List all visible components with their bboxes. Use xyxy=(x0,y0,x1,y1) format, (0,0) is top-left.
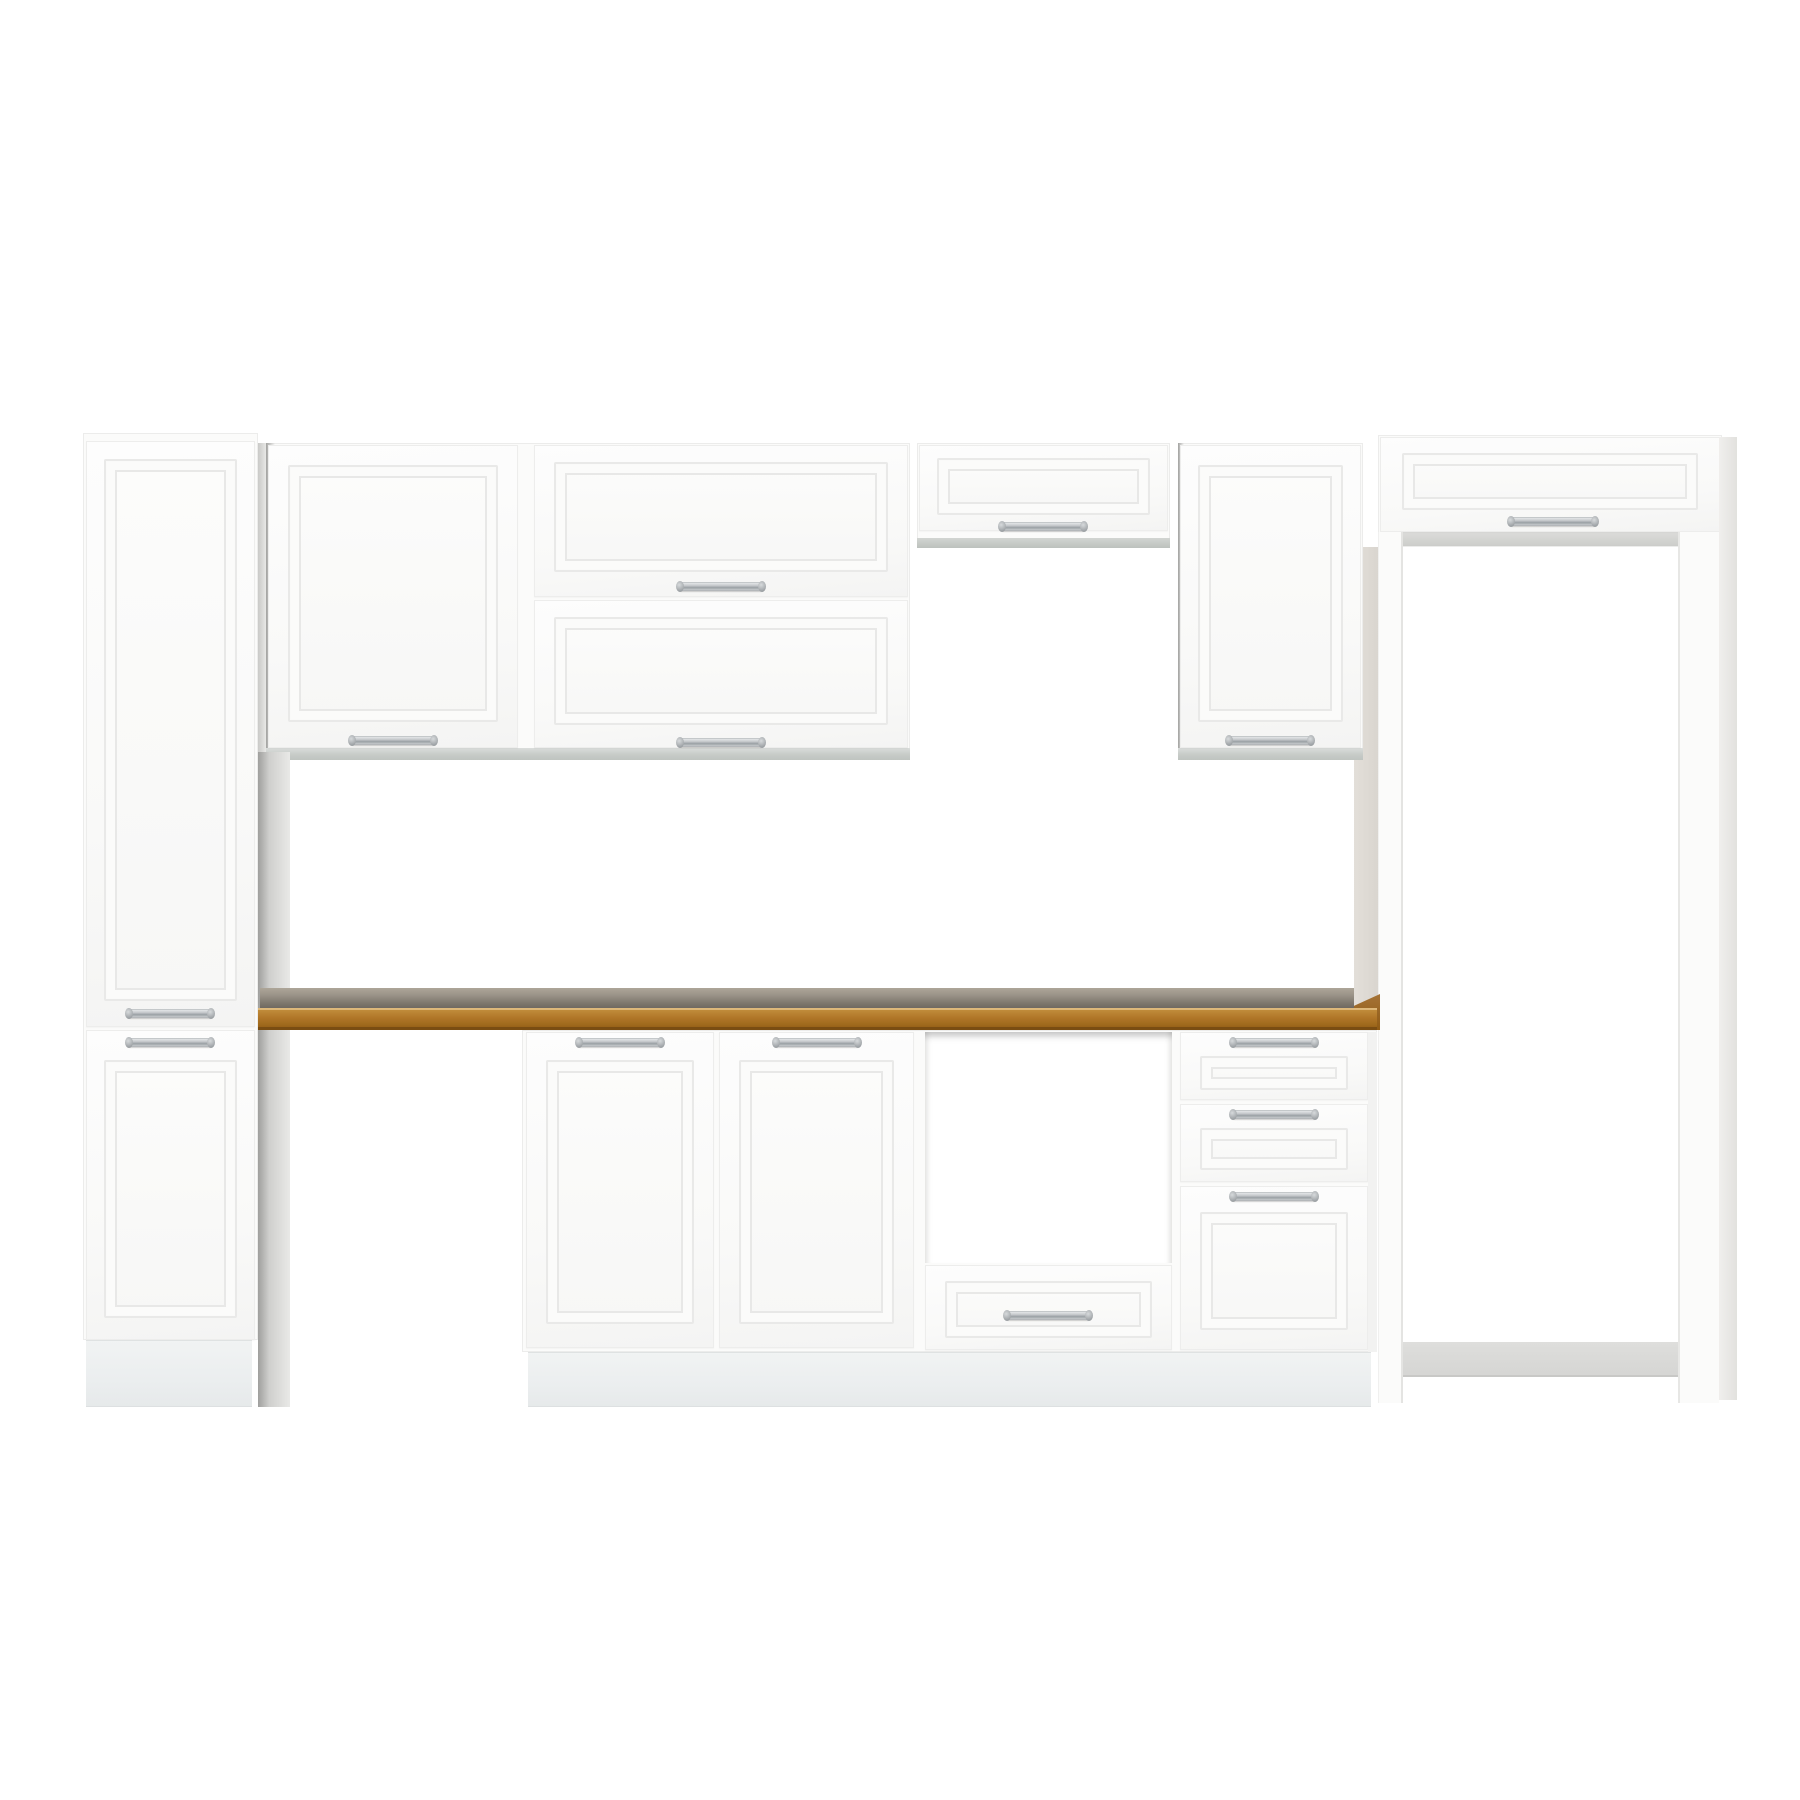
hood-door-panel xyxy=(937,458,1150,515)
fridge-bay-back-panel xyxy=(1403,1342,1678,1377)
pantry-upper-door-panel xyxy=(104,459,237,1001)
bridge-lower-door-panel xyxy=(554,617,888,725)
wall-cabinet-right-handle xyxy=(1226,736,1314,745)
drawer-unit-right-side xyxy=(1368,1032,1377,1352)
base-door-right-handle xyxy=(773,1038,861,1047)
base-door-left-panel xyxy=(546,1060,694,1324)
base-door-left xyxy=(526,1032,714,1348)
pantry-upper-door xyxy=(86,441,255,1027)
pantry-lower-door xyxy=(86,1030,255,1340)
fridge-bay-right-upright xyxy=(1678,532,1719,1403)
drawer-3-panel xyxy=(1200,1212,1348,1330)
pantry-lower-door-panel xyxy=(104,1060,237,1318)
fridge-top-door-handle xyxy=(1508,517,1598,526)
pantry-upper-door-handle xyxy=(126,1009,214,1018)
drawer-1-panel xyxy=(1200,1056,1348,1090)
fridge-bay-left-upright xyxy=(1378,532,1403,1403)
hood-cabinet-handle xyxy=(999,522,1087,531)
countertop-wood-edge xyxy=(258,1008,1377,1030)
oven-opening xyxy=(925,1032,1172,1263)
base-door-right-panel xyxy=(739,1060,894,1324)
product-image xyxy=(0,0,1800,1800)
base-door-right xyxy=(719,1032,914,1348)
countertop-top-surface xyxy=(260,988,1354,1010)
oven-drawer-handle xyxy=(1004,1311,1092,1320)
pantry-right-side-face xyxy=(258,752,290,1407)
fridge-top-door-panel xyxy=(1402,453,1698,510)
bridge-upper-door-handle xyxy=(677,582,765,591)
drawer-3-handle xyxy=(1230,1192,1318,1201)
hood-cabinet-underside xyxy=(917,538,1170,548)
bridge-upper-flip-door xyxy=(534,445,908,597)
wall-cabinet-left-door xyxy=(268,445,518,748)
base-door-left-handle xyxy=(576,1038,664,1047)
wall-left-door-panel xyxy=(288,465,498,722)
pantry-right-seam xyxy=(258,443,266,752)
drawer-2-handle xyxy=(1230,1110,1318,1119)
fridge-top-cabinet-underside xyxy=(1381,532,1720,546)
base-plinth xyxy=(528,1352,1371,1407)
wall-cabinet-right-door xyxy=(1180,445,1361,748)
drawer-2-panel xyxy=(1200,1128,1348,1170)
bridge-lower-door-handle xyxy=(677,738,765,747)
pantry-lower-door-handle xyxy=(126,1038,214,1047)
hood-cabinet-flip-door xyxy=(919,445,1168,531)
pantry-plinth xyxy=(86,1340,252,1407)
oven-drawer-panel xyxy=(945,1281,1152,1338)
bridge-upper-door-panel xyxy=(554,462,888,572)
bridge-lower-flip-door xyxy=(534,600,908,748)
wall-run-underside xyxy=(266,748,910,760)
oven-drawer-front xyxy=(925,1265,1172,1350)
wall-right-door-panel xyxy=(1198,465,1343,722)
wall-cabinet-left-handle xyxy=(349,736,437,745)
drawer-unit-drawer-3 xyxy=(1180,1186,1368,1350)
wall-cabinet-right-underside xyxy=(1178,748,1363,760)
fridge-surround-right-side xyxy=(1719,437,1737,1400)
drawer-1-handle xyxy=(1230,1038,1318,1047)
